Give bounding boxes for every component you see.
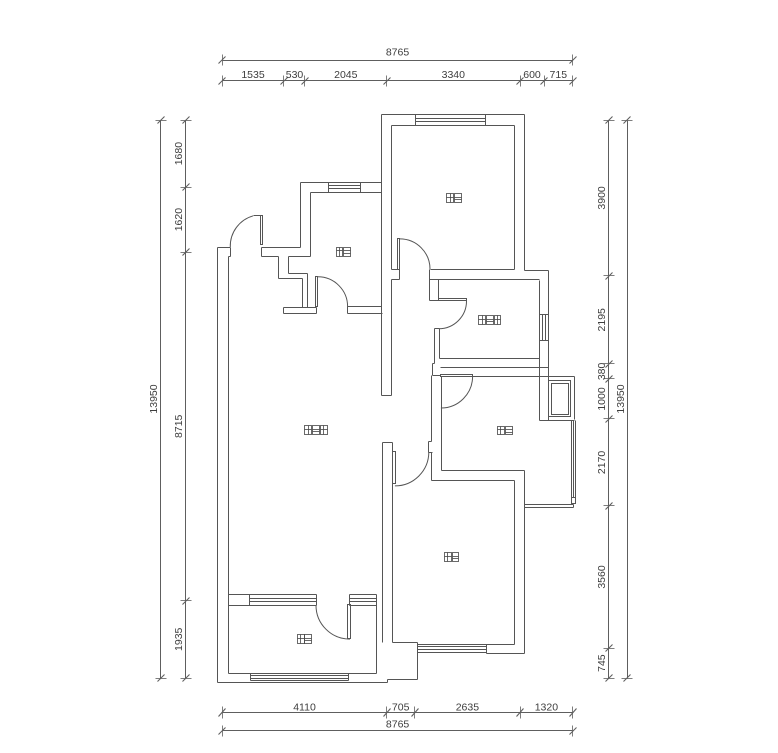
- svg-text:2195: 2195: [596, 308, 608, 332]
- svg-text:705: 705: [392, 702, 410, 714]
- svg-text:8765: 8765: [386, 719, 410, 731]
- svg-text:745: 745: [596, 654, 608, 672]
- svg-text:3900: 3900: [596, 186, 608, 210]
- svg-text:1000: 1000: [596, 387, 608, 411]
- svg-text:530: 530: [286, 69, 304, 81]
- svg-text:13950: 13950: [148, 384, 160, 413]
- svg-text:13950: 13950: [615, 384, 627, 413]
- svg-text:3560: 3560: [596, 565, 608, 589]
- svg-text:1680: 1680: [173, 142, 185, 166]
- svg-text:600: 600: [523, 69, 541, 81]
- svg-text:2045: 2045: [334, 69, 358, 81]
- svg-text:8715: 8715: [173, 414, 185, 438]
- svg-text:4110: 4110: [293, 702, 316, 714]
- svg-text:2170: 2170: [596, 451, 608, 475]
- svg-text:1935: 1935: [173, 627, 185, 651]
- svg-text:3340: 3340: [442, 69, 466, 81]
- svg-text:1320: 1320: [535, 702, 559, 714]
- svg-text:1535: 1535: [241, 69, 265, 81]
- svg-text:380: 380: [596, 362, 608, 380]
- svg-text:715: 715: [550, 69, 568, 81]
- svg-text:2635: 2635: [456, 702, 480, 714]
- svg-text:8765: 8765: [386, 47, 410, 59]
- svg-text:1620: 1620: [173, 208, 185, 232]
